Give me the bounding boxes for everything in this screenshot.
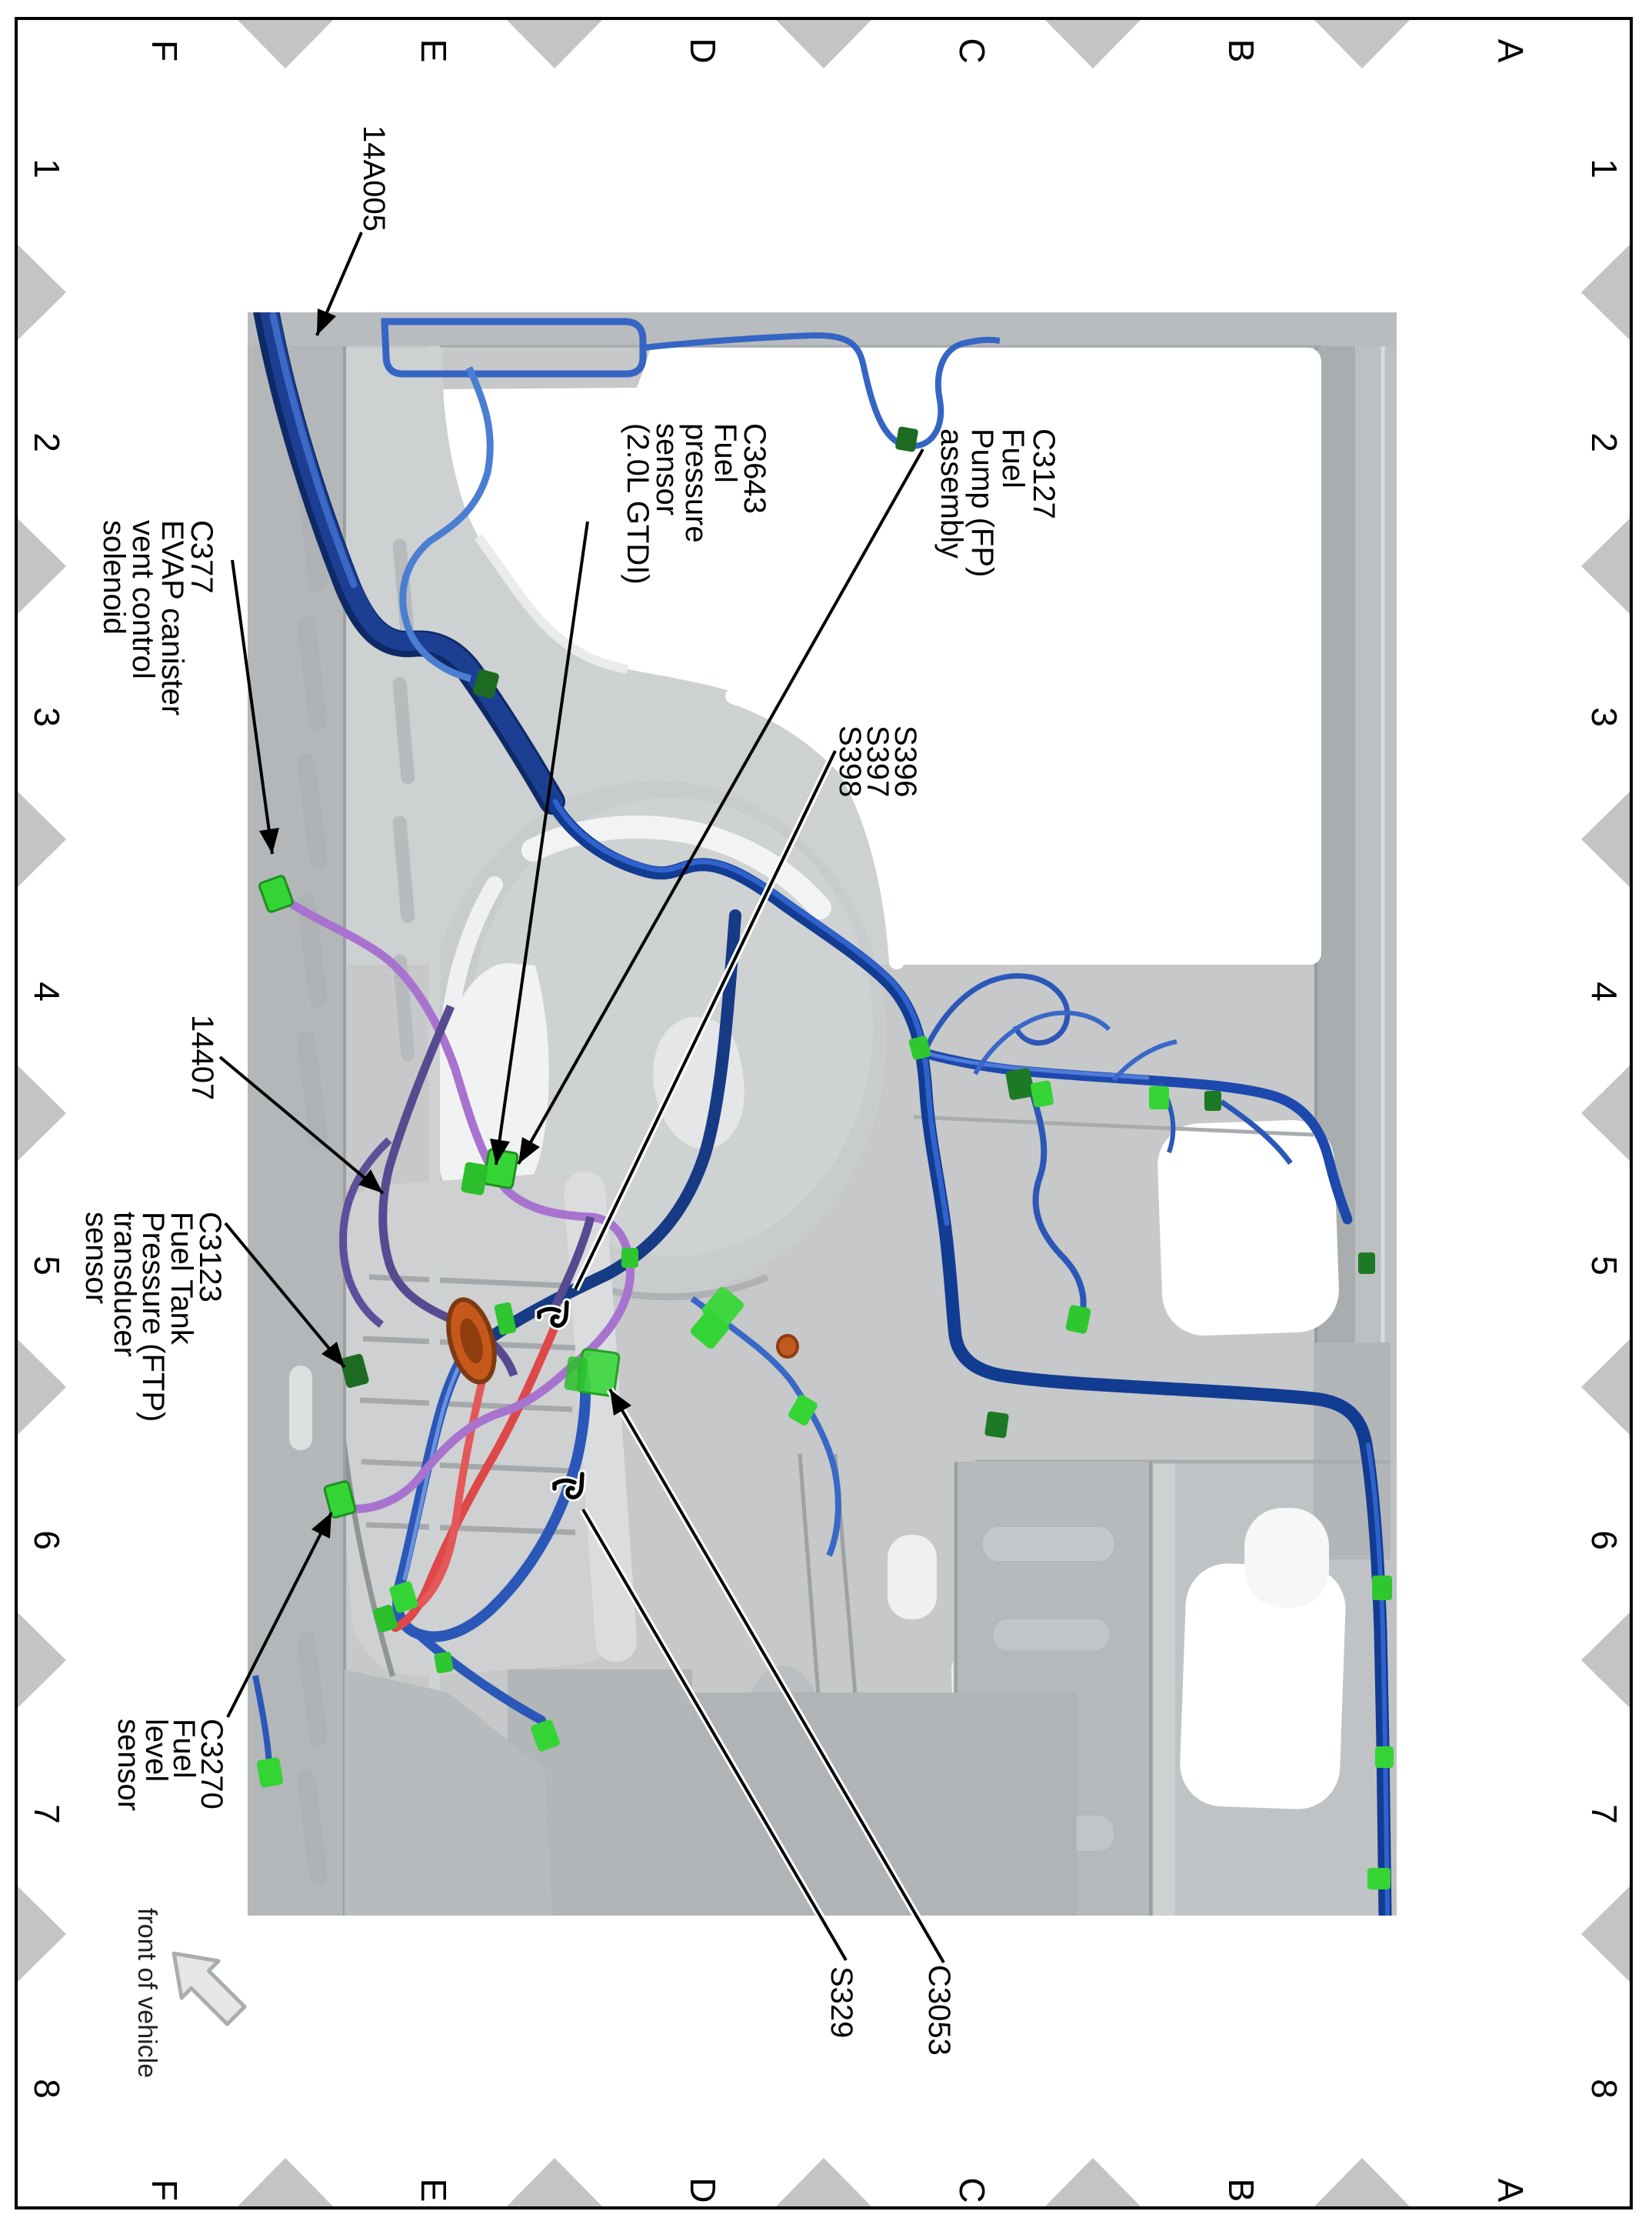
svg-text:14407: 14407 [185,1015,219,1100]
svg-text:front of vehicle: front of vehicle [132,1908,162,2078]
svg-text:3: 3 [1584,707,1624,727]
svg-text:2: 2 [27,432,67,452]
svg-text:6: 6 [1584,1530,1624,1550]
svg-text:4: 4 [27,982,67,1002]
svg-text:C: C [952,38,992,63]
svg-text:7: 7 [27,1804,67,1824]
svg-text:F: F [145,40,185,62]
svg-text:A: A [1490,39,1530,63]
svg-text:E: E [414,39,454,63]
svg-text:8: 8 [1584,2079,1624,2099]
svg-text:5: 5 [27,1256,67,1276]
svg-text:A: A [1490,2179,1530,2203]
svg-text:S329: S329 [824,1966,858,2038]
svg-text:2: 2 [1584,432,1624,452]
svg-text:1: 1 [27,158,67,178]
svg-text:F: F [145,2179,185,2201]
svg-text:4: 4 [1584,982,1624,1002]
svg-text:C: C [952,2177,992,2203]
svg-text:S396S397S398: S396S397S398 [833,725,922,797]
svg-text:6: 6 [27,1530,67,1550]
svg-text:8: 8 [27,2079,67,2099]
svg-text:D: D [683,38,723,63]
svg-text:C3053: C3053 [922,1965,956,2056]
svg-text:1: 1 [1584,158,1624,178]
svg-text:3: 3 [27,707,67,727]
svg-text:B: B [1221,2179,1261,2203]
svg-text:5: 5 [1584,1256,1624,1276]
svg-text:B: B [1221,39,1261,63]
svg-text:E: E [414,2179,454,2203]
svg-text:7: 7 [1584,1804,1624,1824]
svg-text:14A005: 14A005 [357,125,391,232]
svg-text:D: D [683,2177,723,2203]
